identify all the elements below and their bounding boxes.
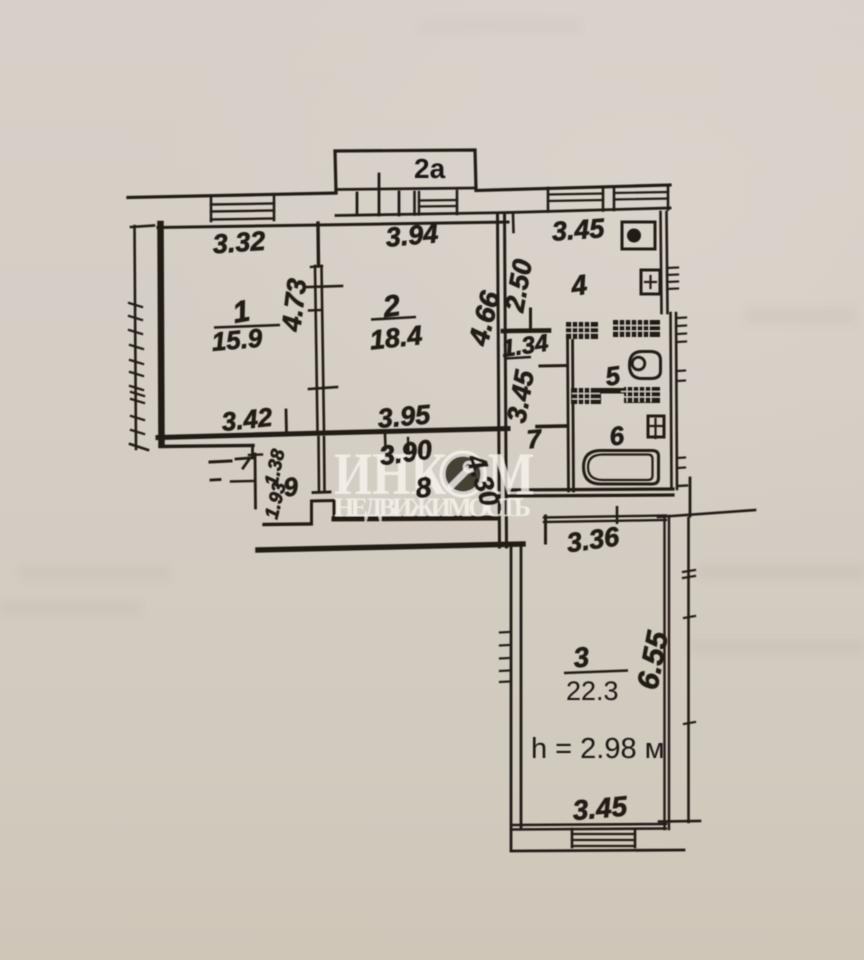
svg-text:3.95: 3.95 [376, 399, 432, 434]
svg-text:3: 3 [572, 641, 591, 674]
svg-text:h = 2.98 м: h = 2.98 м [531, 733, 665, 765]
svg-text:3.32: 3.32 [212, 226, 267, 260]
svg-text:3.36: 3.36 [565, 521, 622, 558]
svg-text:18.4: 18.4 [368, 320, 423, 355]
svg-text:15.9: 15.9 [210, 323, 264, 357]
svg-text:5: 5 [603, 360, 622, 392]
svg-text:3.94: 3.94 [384, 218, 439, 252]
svg-text:3.45: 3.45 [501, 367, 540, 425]
svg-text:4: 4 [568, 269, 589, 302]
svg-text:3.42: 3.42 [220, 402, 274, 437]
svg-text:4.73: 4.73 [276, 277, 312, 334]
svg-text:22.3: 22.3 [566, 676, 619, 706]
svg-text:1.93: 1.93 [261, 480, 290, 521]
svg-text:3.45: 3.45 [551, 213, 606, 247]
svg-text:6: 6 [607, 420, 626, 452]
svg-text:8: 8 [414, 471, 433, 503]
svg-text:3.45: 3.45 [571, 790, 628, 826]
svg-text:2a: 2a [414, 153, 446, 184]
